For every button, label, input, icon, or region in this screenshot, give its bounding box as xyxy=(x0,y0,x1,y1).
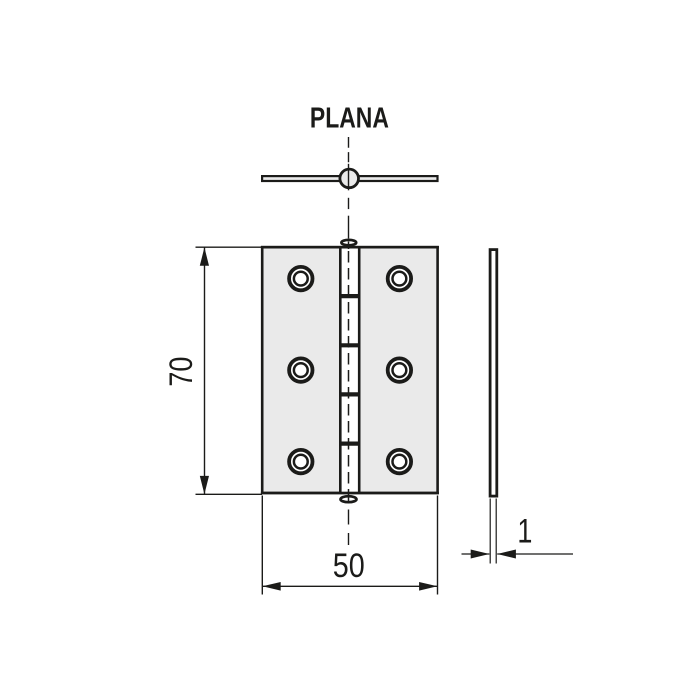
svg-text:50: 50 xyxy=(333,547,365,585)
svg-text:1: 1 xyxy=(517,512,532,550)
svg-text:70: 70 xyxy=(163,357,199,387)
svg-text:PLANA: PLANA xyxy=(310,102,389,134)
